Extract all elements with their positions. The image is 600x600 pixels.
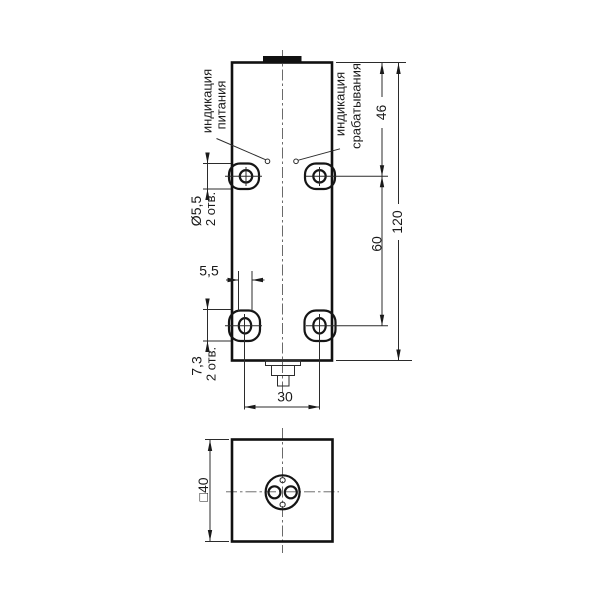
arrowhead	[252, 278, 263, 282]
arrowhead	[245, 405, 256, 409]
connector-pin-left	[269, 486, 281, 498]
power-indication-label-line1: индикация	[200, 69, 215, 133]
output-indication-label-line1: индикация	[333, 72, 348, 136]
connector	[266, 361, 301, 387]
technical-drawing: индикация питания индикация срабатывания…	[0, 0, 600, 600]
bottom-view: □40	[195, 428, 339, 553]
indication-labels: индикация питания индикация срабатывания	[200, 63, 364, 160]
hole-spacing-dimension: 30	[245, 389, 320, 410]
power-leader-line	[217, 139, 266, 160]
dim-30: 30	[277, 389, 293, 405]
drawing-canvas: индикация питания индикация срабатывания…	[0, 0, 600, 600]
connector-pin-right	[285, 486, 297, 498]
arrowhead	[208, 530, 212, 541]
dim-square-40: □40	[195, 477, 211, 501]
body-outline	[232, 63, 332, 361]
arrowhead	[380, 315, 384, 326]
power-led-dot	[265, 159, 270, 164]
top-hole-dimension: Ø5,5 2 отв.	[188, 153, 231, 227]
dim-120: 120	[389, 210, 405, 234]
dim-slot-width: 5,5	[199, 263, 219, 279]
dim-slot-len-qty: 2 отв.	[204, 347, 219, 381]
dim-hole-dia: Ø5,5	[188, 196, 204, 227]
arrowhead	[396, 63, 400, 74]
connector-step-3	[278, 376, 290, 387]
arrowhead	[380, 63, 384, 74]
arrowhead	[205, 153, 209, 164]
dim-46: 46	[373, 105, 389, 121]
power-indication-label-line2: питания	[214, 81, 229, 130]
arrowhead	[309, 405, 320, 409]
bottom-slot-dimension: 7,3 2 отв.	[189, 299, 232, 382]
dim-hole-dia-qty: 2 отв.	[203, 192, 218, 226]
output-leader-line	[298, 149, 340, 160]
output-indication-label-line2: срабатывания	[349, 63, 364, 149]
arrowhead	[396, 350, 400, 361]
output-led-dot	[294, 159, 299, 164]
arrowhead	[380, 165, 384, 176]
connector-step-2	[272, 366, 295, 376]
arrowhead	[208, 440, 212, 451]
front-view	[225, 50, 388, 410]
arrowhead	[380, 176, 384, 187]
arrowhead	[205, 299, 209, 310]
dim-slot-len: 7,3	[189, 356, 205, 376]
dim-60: 60	[369, 236, 385, 252]
